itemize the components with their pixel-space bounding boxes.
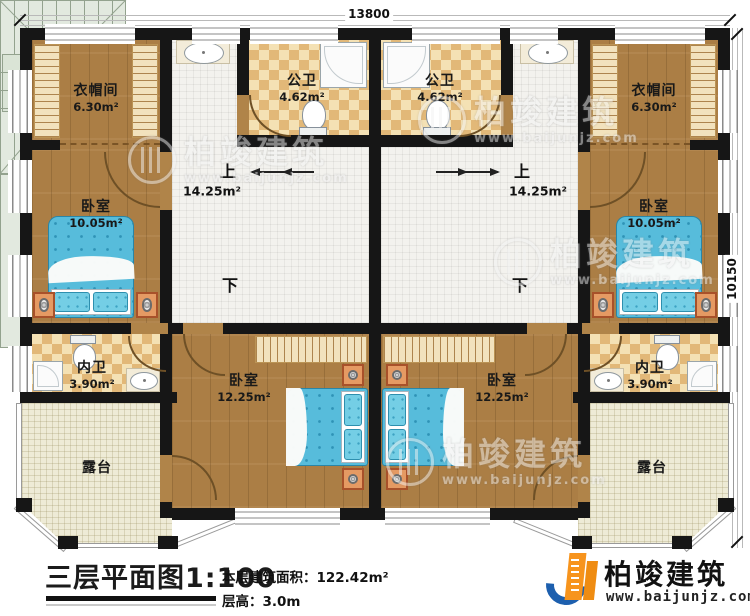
wall: [573, 392, 730, 403]
room-label-terrace-left: 露台: [82, 457, 112, 477]
railing-post: [718, 498, 734, 512]
dimension-height: 10150: [725, 255, 739, 303]
window: [510, 24, 558, 44]
window: [250, 24, 338, 44]
wall: [172, 508, 235, 520]
arrow-head-icon: [458, 168, 468, 176]
wall: [237, 135, 369, 147]
pillow: [344, 394, 362, 426]
wall: [567, 323, 582, 334]
window: [615, 24, 705, 44]
terrace-railing: [728, 403, 734, 509]
window: [718, 70, 742, 133]
wall: [690, 140, 718, 150]
floor-plan: 13800 10150: [0, 0, 750, 616]
pillow: [388, 429, 406, 461]
shower: [687, 361, 717, 391]
dimension-width: 13800: [345, 7, 393, 21]
pillow: [93, 292, 129, 312]
wall: [619, 323, 730, 334]
door-opening: [183, 323, 223, 334]
dimension-line: [742, 28, 743, 548]
room-label-wc-left: 内卫3.90m²: [69, 357, 114, 391]
nightstand: [342, 468, 364, 490]
window: [192, 24, 240, 44]
nightstand: [342, 364, 364, 386]
wall: [168, 323, 183, 334]
wall: [381, 323, 527, 334]
stair-up-label: 上: [514, 158, 530, 182]
railing-post: [158, 536, 178, 549]
door-opening: [582, 323, 619, 334]
door-opening: [578, 455, 590, 502]
title-underline: [46, 596, 216, 601]
arrow-head-icon: [490, 168, 500, 176]
shower: [33, 361, 63, 391]
terrace-railing: [513, 518, 576, 547]
stair-area-label: 14.25m²: [509, 184, 567, 199]
wall: [20, 323, 131, 334]
brand-url: www.baijunjz.com: [606, 589, 750, 605]
toilet-tank: [654, 335, 680, 344]
door-opening: [160, 152, 172, 210]
wall: [20, 392, 177, 403]
railing-post: [58, 536, 78, 549]
railing-post: [16, 498, 32, 512]
sink: [130, 372, 158, 390]
pillow: [344, 429, 362, 461]
wardrobe: [132, 44, 158, 138]
arrow-head-icon: [250, 168, 260, 176]
window: [235, 508, 340, 528]
toilet-tank: [70, 335, 96, 344]
open-passage: [590, 143, 690, 145]
arrow-head-icon: [282, 168, 292, 176]
room-label-bedroom-bottom-left: 卧室12.25m²: [217, 370, 270, 404]
window: [8, 255, 32, 317]
bed: [382, 388, 464, 466]
stair-area-label: 14.25m²: [183, 184, 241, 199]
wall: [490, 508, 578, 520]
window: [45, 24, 135, 44]
window: [8, 70, 32, 133]
floor-height-label: 层高：3.0m: [222, 590, 300, 610]
door-opening: [527, 323, 567, 334]
terrace-railing: [16, 403, 22, 509]
stair-down-label: 下: [512, 272, 528, 296]
bed: [616, 216, 702, 318]
window: [385, 508, 490, 528]
wall: [578, 40, 590, 152]
building-area-label: 本层建筑面积：122.42m²: [222, 566, 389, 586]
window: [8, 346, 32, 392]
room-label-terrace-right: 露台: [637, 457, 667, 477]
open-passage: [60, 143, 160, 145]
wardrobe: [34, 44, 60, 138]
door-opening: [160, 455, 172, 502]
room-label-cloakroom-right: 衣帽间6.30m²: [631, 80, 676, 114]
title-underline: [46, 604, 216, 606]
toilet: [426, 100, 450, 130]
nightstand: [386, 364, 408, 386]
wall: [237, 40, 249, 95]
nightstand: [695, 292, 717, 318]
wall: [501, 40, 513, 95]
window: [8, 160, 32, 213]
wall: [160, 210, 172, 323]
room-label-wc-right: 内卫3.90m²: [627, 357, 672, 391]
railing-post: [572, 536, 592, 549]
door-opening: [501, 95, 513, 135]
brand-logo-icon: [546, 551, 602, 611]
wall: [381, 135, 513, 147]
door-opening: [131, 323, 168, 334]
terrace-railing: [174, 518, 237, 547]
brand-name: 柏竣建筑: [604, 553, 728, 593]
wardrobe: [255, 336, 367, 363]
wall: [32, 140, 60, 150]
window: [718, 346, 742, 392]
wall: [578, 502, 590, 518]
wardrobe: [690, 44, 716, 138]
wall: [340, 508, 385, 520]
nightstand: [386, 468, 408, 490]
room-label-bedroom-right: 卧室10.05m²: [627, 196, 680, 230]
pillow: [661, 292, 697, 312]
railing-post: [672, 536, 692, 549]
stair-down-label: 下: [222, 272, 238, 296]
wall: [160, 40, 172, 152]
sink: [594, 372, 622, 390]
wardrobe: [383, 336, 495, 363]
wall: [369, 40, 381, 520]
wall: [160, 502, 172, 518]
nightstand: [33, 292, 55, 318]
toilet: [302, 100, 326, 130]
room-label-cloakroom-left: 衣帽间6.30m²: [73, 80, 118, 114]
room-label-bath-left: 公卫4.62m²: [279, 70, 324, 104]
room-label-bedroom-bottom-right: 卧室12.25m²: [475, 370, 528, 404]
door-opening: [237, 95, 249, 135]
sink: [184, 42, 224, 64]
sink: [528, 42, 568, 64]
room-label-bedroom-left: 卧室10.05m²: [69, 196, 122, 230]
bed: [286, 388, 368, 466]
nightstand: [136, 292, 158, 318]
wall: [578, 210, 590, 323]
nightstand: [592, 292, 614, 318]
shower: [320, 42, 367, 88]
bed: [48, 216, 134, 318]
door-opening: [578, 152, 590, 210]
window: [412, 24, 500, 44]
window: [718, 160, 742, 213]
stair-up-label: 上: [220, 158, 236, 182]
wall: [223, 323, 369, 334]
pillow: [54, 292, 90, 312]
terrace-railing: [576, 543, 686, 548]
pillow: [622, 292, 658, 312]
wardrobe: [592, 44, 618, 138]
pillow: [388, 394, 406, 426]
room-label-bath-right: 公卫4.62m²: [417, 70, 462, 104]
